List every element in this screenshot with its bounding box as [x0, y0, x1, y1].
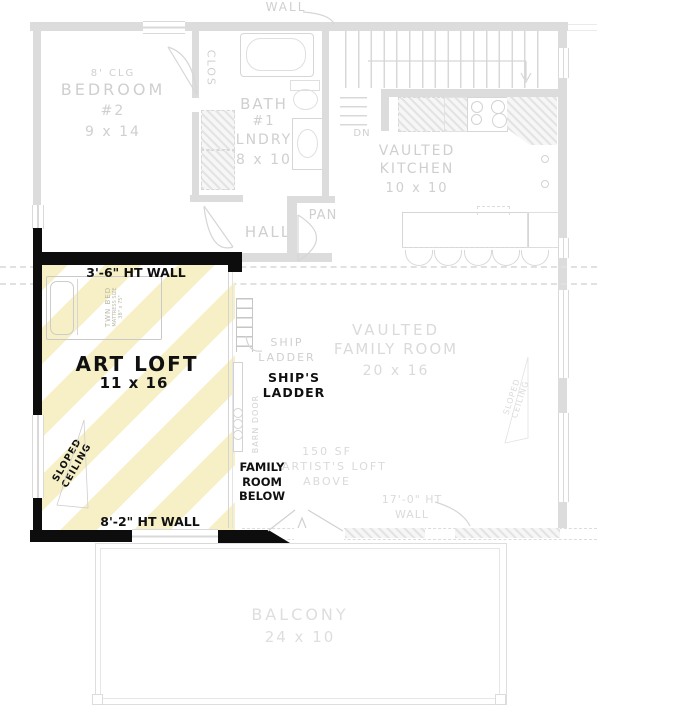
stool — [492, 250, 520, 266]
bath-number: #1 — [224, 115, 304, 130]
wall-callout-label: WALL — [258, 1, 314, 15]
stove-burner — [471, 114, 482, 125]
room-family-labels: VAULTED FAMILY ROOM 20 x 16 — [330, 322, 462, 379]
loft-bottom-wall-label: 8'-2" HT WALL — [90, 514, 210, 529]
loft-note-line1: 150 SF — [282, 444, 372, 459]
bathtub-basin — [246, 38, 306, 71]
bedroom-door-swing — [204, 206, 233, 248]
loft-window-left — [32, 415, 44, 498]
window-right — [558, 48, 569, 78]
family-line1: VAULTED — [330, 322, 462, 339]
barn-door-label: BARN DOOR — [243, 378, 255, 470]
ship-ladder-note: SHIP LADDER — [252, 336, 322, 364]
stairs-dn-label: DN — [350, 128, 374, 140]
stove-burner — [491, 100, 505, 114]
family-below-line2: ROOM — [227, 475, 297, 490]
ships-ladder-line2: LADDER — [259, 385, 329, 400]
ships-ladder-label: SHIP'S LADDER — [259, 370, 329, 400]
window-right — [558, 290, 569, 378]
room-bedroom2-labels: 8' CLG BEDROOM #2 9 x 14 — [53, 68, 173, 140]
bed-line — [77, 279, 78, 335]
ladder-step — [233, 419, 243, 429]
family-line2: FAMILY ROOM — [330, 341, 462, 358]
floor-plan: WALL 8' CLG BEDROOM #2 9 x 14 CLOS BATH … — [0, 0, 700, 713]
refrigerator — [398, 97, 445, 132]
balcony-dims: 24 x 10 — [230, 629, 370, 646]
loft-wall-left — [33, 228, 42, 415]
ships-ladder-line1: SHIP'S — [259, 370, 329, 385]
bath-name: BATH — [224, 96, 304, 113]
wall-right — [558, 378, 567, 413]
bed-label-line3: 38" x 75" — [118, 272, 124, 342]
room-bath-labels: BATH #1 LNDRY 8 x 10 — [224, 96, 304, 168]
wall-pantry-top — [297, 196, 335, 203]
stool — [434, 250, 462, 266]
bedroom2-dims: 9 x 14 — [53, 124, 173, 140]
stool — [464, 250, 492, 266]
wall-bath-right — [322, 30, 329, 202]
balcony-name: BALCONY — [230, 606, 370, 624]
bed-label: TWN BED MATTRESS SIZE 38" x 75" — [104, 272, 130, 342]
family-below-note: FAMILY ROOM BELOW — [227, 460, 297, 504]
window-right — [558, 413, 569, 502]
counter-left — [444, 97, 468, 132]
ship-ladder-note-line2: LADDER — [252, 351, 322, 364]
island-sink-notch — [477, 206, 510, 215]
ht-wall-line1: 17'-0" HT — [380, 494, 444, 507]
kitchen-island — [402, 212, 529, 248]
wall-closet2 — [192, 112, 199, 197]
pantry-label: PAN — [302, 209, 344, 224]
bed-label-line1: TWN BED — [104, 272, 112, 342]
stove-burner — [471, 101, 483, 113]
wall-stair-bottom — [388, 89, 560, 97]
loft-dims: 11 x 16 — [84, 374, 184, 392]
loft-top-wall-label: 3'-6" HT WALL — [80, 265, 192, 280]
ship-ladder-icon — [236, 298, 253, 352]
loft-wall-top — [33, 252, 242, 265]
bath-laundry: LNDRY — [224, 132, 304, 148]
wall-top — [30, 22, 568, 31]
wall-kitchen-left — [381, 89, 389, 131]
family-dims: 20 x 16 — [330, 363, 462, 379]
sloped-ceiling-note-right: SLOPED CEILING — [498, 367, 534, 430]
barn-door-text: BARN DOOR — [251, 395, 260, 453]
kitchen-line1: VAULTED — [377, 143, 457, 159]
bedroom2-ceiling-label: 8' CLG — [53, 68, 173, 80]
stool — [521, 250, 549, 266]
room-kitchen-labels: VAULTED KITCHEN 10 x 10 — [377, 143, 457, 197]
island-cabinet — [527, 212, 559, 248]
kitchen-line2: KITCHEN — [377, 161, 457, 177]
ht-wall-note: 17'-0" HT WALL — [380, 494, 444, 521]
wall-right — [558, 30, 567, 48]
ladder-step — [233, 430, 243, 440]
ship-ladder-note-line1: SHIP — [252, 336, 322, 349]
bed-pillow — [50, 281, 74, 335]
bedroom2-number: #2 — [53, 103, 173, 119]
wall-bath-bottom — [190, 195, 243, 202]
bath-dims: 8 x 10 — [224, 152, 304, 168]
loft-window-bottom — [132, 529, 218, 544]
wall-right — [558, 502, 567, 528]
bedroom2-name: BEDROOM — [53, 81, 173, 99]
room-balcony-labels: BALCONY 24 x 10 — [230, 606, 370, 647]
wall-family-bottom-seg — [345, 528, 425, 538]
window-left — [32, 205, 44, 229]
window-right — [558, 238, 569, 258]
balcony-post — [92, 694, 103, 705]
window-top — [143, 21, 185, 34]
balcony-post — [495, 694, 506, 705]
wall-family-bottom-seg — [455, 528, 560, 538]
loft-wall-bottom — [30, 530, 132, 542]
wall-left — [33, 30, 41, 205]
loft-name: ART LOFT — [62, 352, 212, 376]
sink-drain — [541, 180, 549, 188]
loft-wall-corner — [228, 252, 242, 272]
ht-wall-line2: WALL — [380, 509, 444, 522]
wall-break — [568, 24, 597, 31]
wall-closet — [192, 30, 199, 98]
stool — [405, 250, 433, 266]
counter-right — [507, 97, 557, 145]
island-overhang — [402, 247, 557, 248]
kitchen-dims: 10 x 10 — [377, 182, 457, 197]
stove-burner — [492, 113, 507, 128]
ladder-step — [233, 408, 243, 418]
sink-drain — [541, 155, 549, 163]
wall-right — [558, 258, 567, 290]
family-below-line1: FAMILY — [227, 460, 297, 475]
family-below-line3: BELOW — [227, 489, 297, 504]
wall-hall-bottom — [242, 253, 332, 262]
closet-label: CLOS — [204, 48, 217, 88]
wall-right — [558, 78, 567, 238]
stairs — [345, 31, 550, 88]
door-opening — [294, 526, 344, 540]
